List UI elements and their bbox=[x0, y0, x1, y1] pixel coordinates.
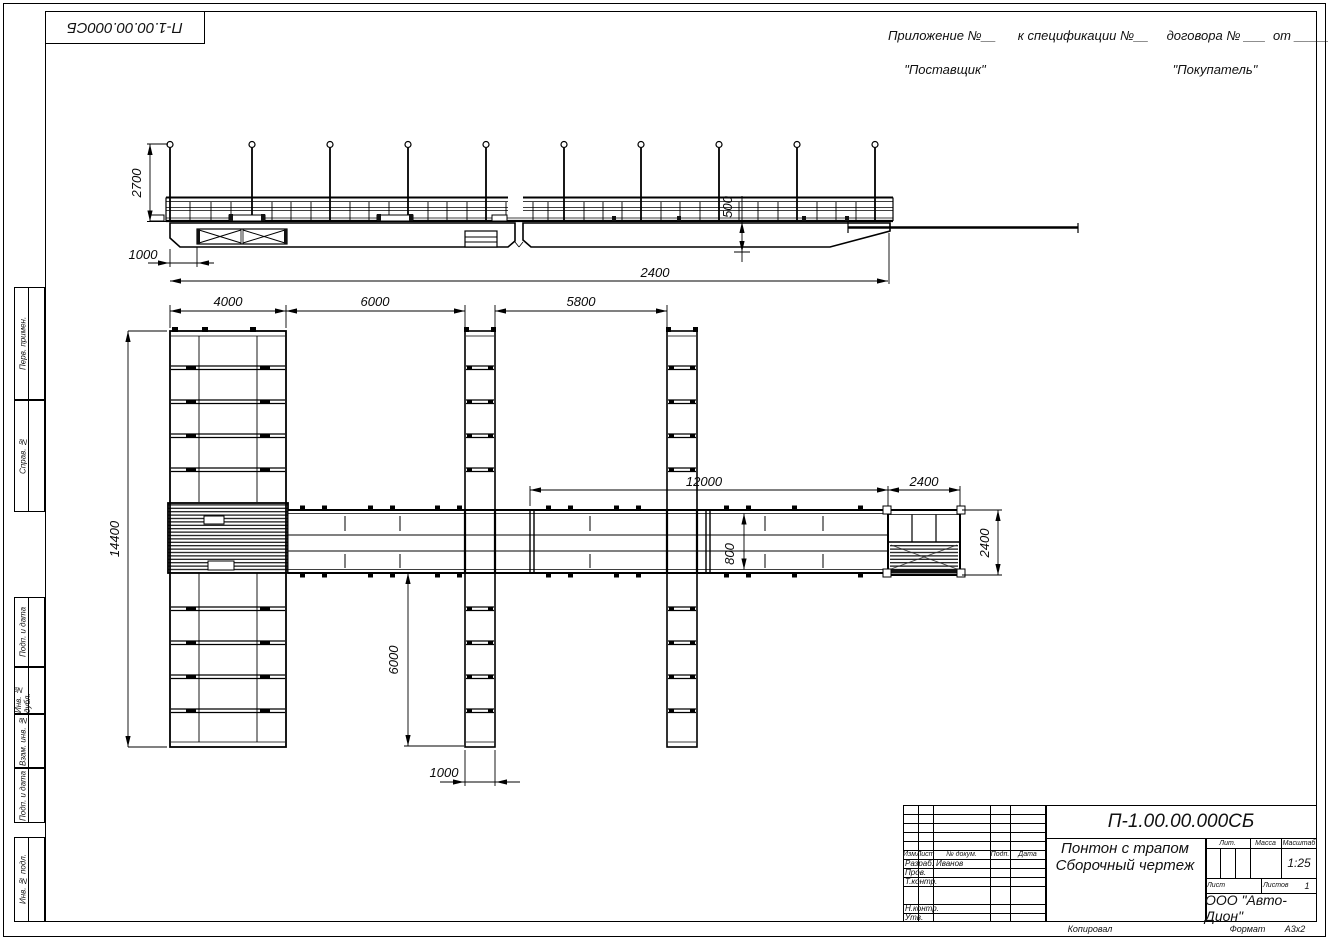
doc-number-stamp-box: П-1.00.00.000СБ bbox=[45, 11, 205, 44]
tb-col-list: Лист bbox=[918, 850, 933, 859]
tb-drawing-name: Понтон с трапом Сборочный чертеж bbox=[1045, 840, 1205, 896]
tb-row-razrab: Разраб. bbox=[903, 859, 933, 868]
stamp-podp-data-2: Подп. и дата bbox=[14, 768, 45, 823]
stamp-cell bbox=[28, 401, 44, 511]
tb-lit-label: Лит. bbox=[1205, 838, 1250, 848]
stamp-sprav-no: Справ. № bbox=[14, 400, 45, 512]
tb-line bbox=[903, 823, 1045, 824]
buyer-label: "Покупатель" bbox=[1160, 62, 1270, 77]
tb-company: ООО "Авто-Дион" bbox=[1205, 893, 1317, 922]
tb-name-line2: Сборочный чертеж bbox=[1056, 857, 1195, 874]
tb-row-prov: Пров. bbox=[903, 868, 933, 877]
footer-format-value: А3х2 bbox=[1278, 924, 1312, 934]
stamp-cell bbox=[28, 288, 44, 399]
stamp-cell bbox=[28, 715, 44, 767]
drawing-sheet: П-1.00.00.000СБ Приложение №__ к специфи… bbox=[0, 0, 1328, 939]
stamp-perv-primen: Перв. примен. bbox=[14, 287, 45, 400]
tb-scale-value: 1:25 bbox=[1281, 848, 1317, 878]
tb-row-utv: Утв. bbox=[903, 913, 933, 922]
contract-annotation: Приложение №__ к спецификации №__ догово… bbox=[888, 28, 1328, 43]
tb-col-podp: Подп. bbox=[990, 850, 1010, 859]
tb-row-tkontr: Т.контр. bbox=[903, 877, 933, 886]
footer-copied: Копировал bbox=[1040, 924, 1140, 934]
drawing-frame bbox=[45, 11, 1317, 922]
tb-col-data: Дата bbox=[1010, 850, 1045, 859]
tb-line bbox=[903, 814, 1045, 815]
supplier-label: "Поставщик" bbox=[890, 62, 1000, 77]
tb-line bbox=[1220, 848, 1221, 878]
footer-format-label: Формат bbox=[1225, 924, 1270, 934]
tb-col-doc: № докум. bbox=[933, 850, 990, 859]
stamp-cell bbox=[28, 598, 44, 666]
tb-name-line1: Понтон с трапом bbox=[1061, 840, 1189, 857]
stamp-cell bbox=[28, 838, 44, 921]
stamp-vzam-inv: Взам. инв. № bbox=[14, 714, 45, 768]
stamp-cell bbox=[28, 668, 44, 713]
tb-developer: Иванов bbox=[934, 859, 990, 868]
tb-line bbox=[903, 841, 1045, 842]
tb-line bbox=[903, 832, 1045, 833]
tb-masshtab-label: Масштаб bbox=[1281, 838, 1317, 848]
stamp-podp-data-1: Подп. и дата bbox=[14, 597, 45, 667]
stamp-cell bbox=[28, 769, 44, 822]
tb-row-nkontr: Н.контр. bbox=[903, 904, 933, 913]
tb-doc-number: П-1.00.00.000СБ bbox=[1045, 805, 1317, 838]
tb-line bbox=[903, 886, 1045, 887]
doc-number-rotated: П-1.00.00.000СБ bbox=[67, 19, 183, 36]
tb-massa-label: Масса bbox=[1250, 838, 1281, 848]
tb-line bbox=[1235, 848, 1236, 878]
stamp-inv-podl: Инв. № подл. bbox=[14, 837, 45, 922]
stamp-inv-dubl: Инв. № дубл. bbox=[14, 667, 45, 714]
